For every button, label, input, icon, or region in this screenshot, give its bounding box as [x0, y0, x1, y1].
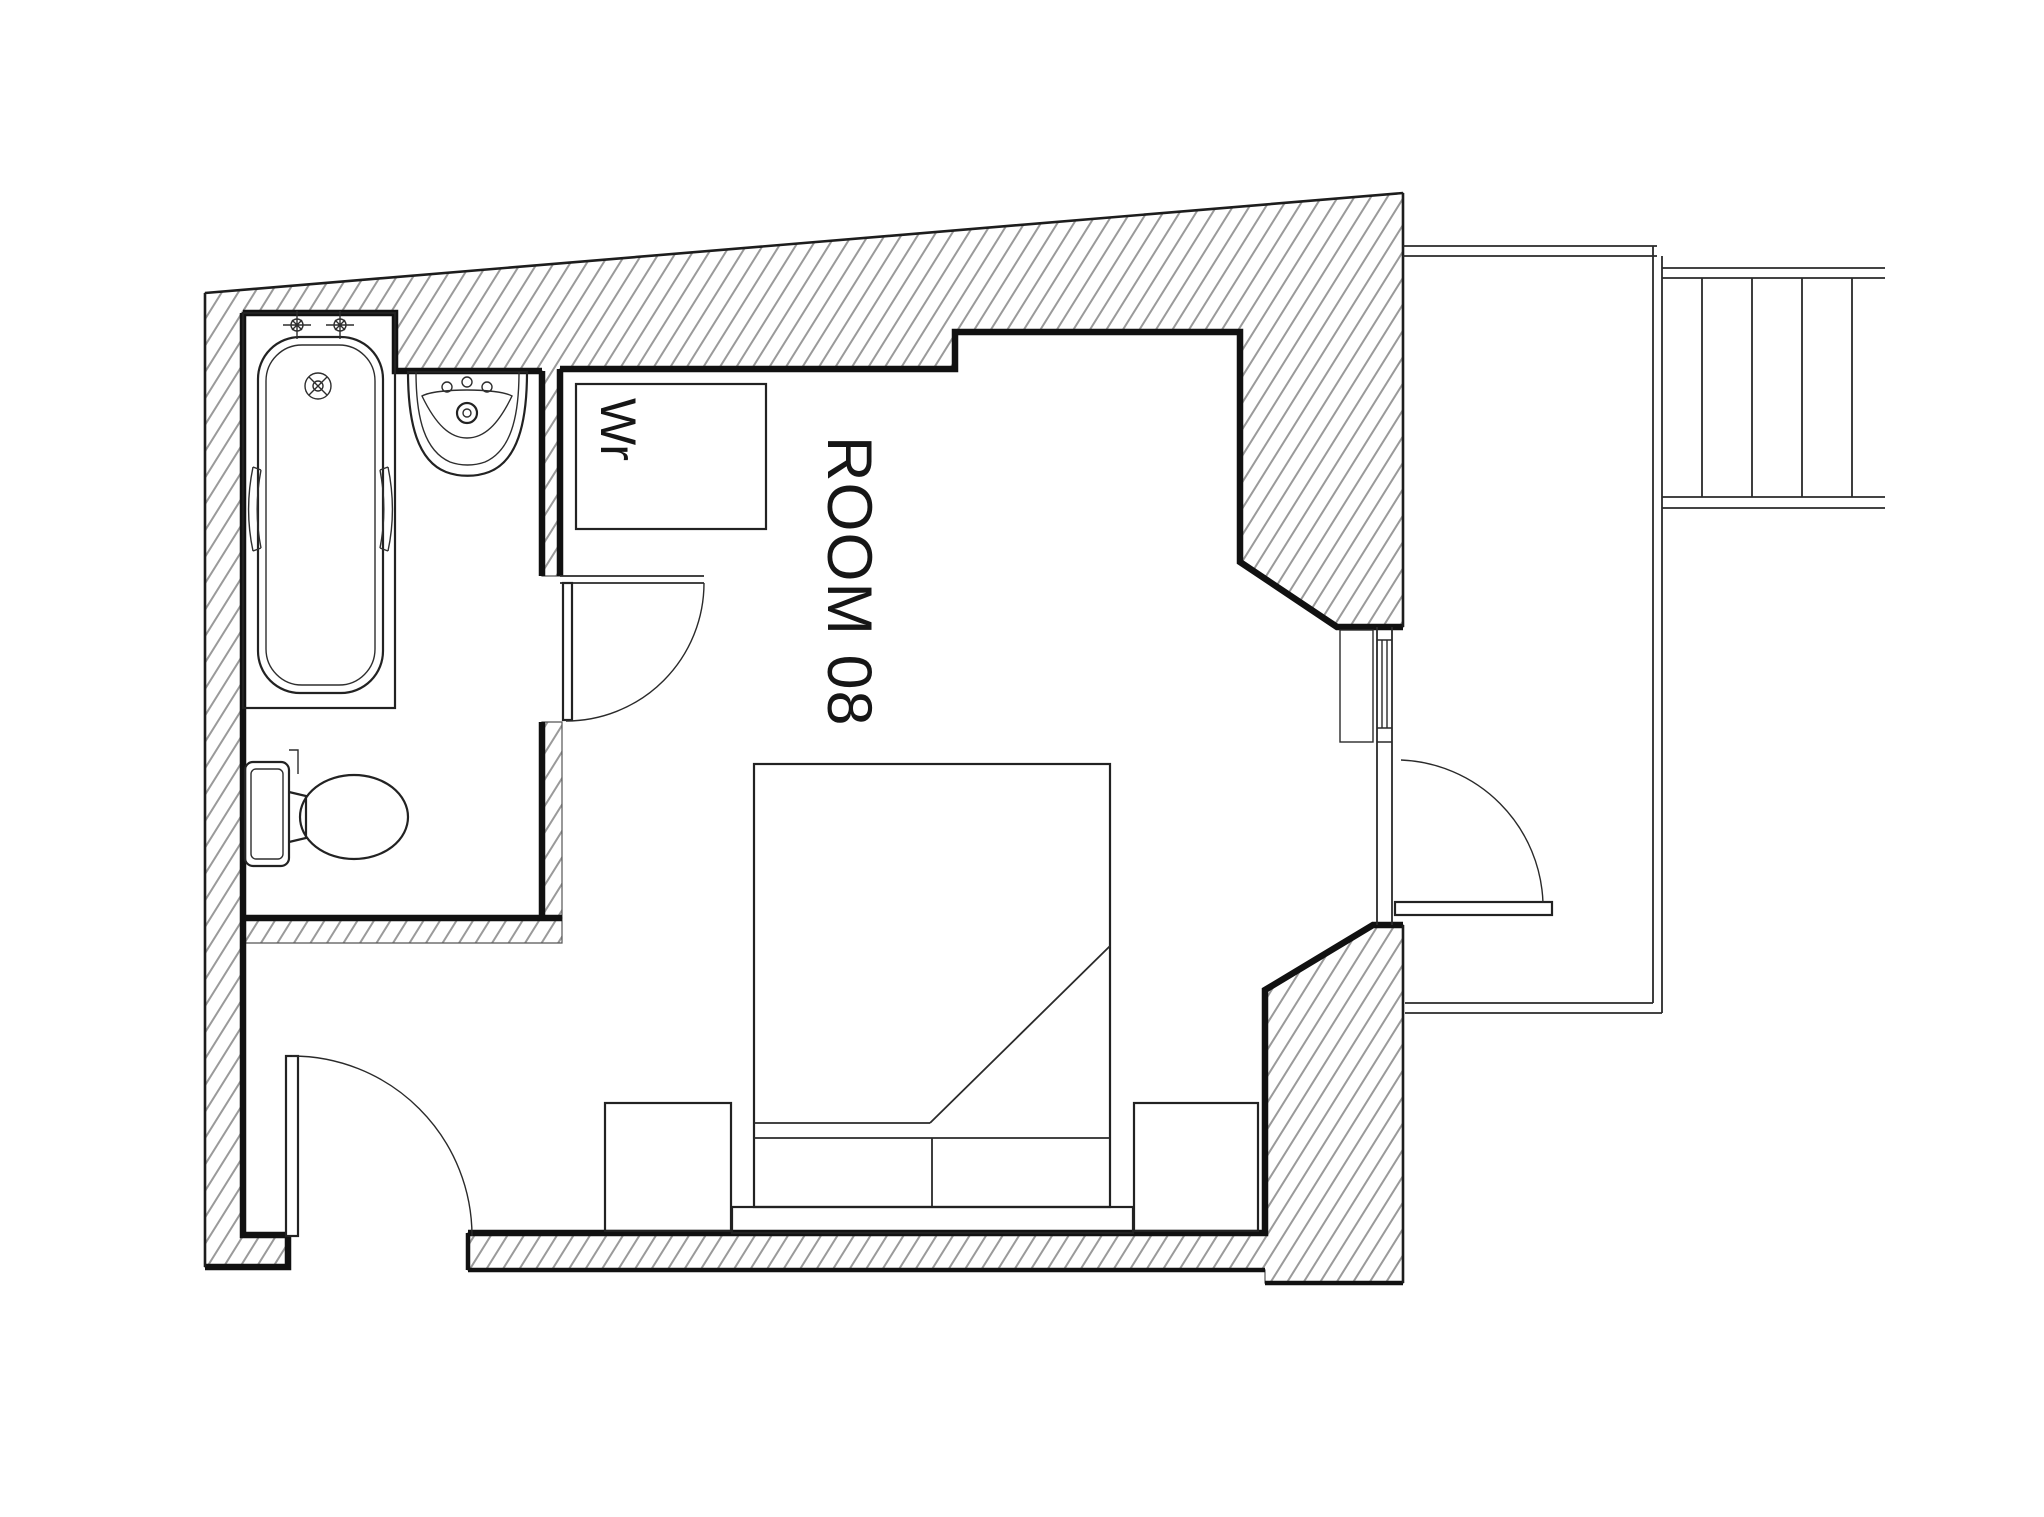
toilet-flush-handle — [289, 750, 298, 774]
bathroom-door-swing-arc — [566, 583, 704, 721]
wall-niche — [1340, 630, 1373, 742]
sink-inner — [416, 372, 519, 465]
wardrobe: Wr — [576, 384, 766, 529]
sink-basin — [422, 390, 512, 438]
bathtub-inner — [266, 345, 375, 685]
main-door — [1395, 760, 1552, 915]
landing-bottom-edge — [1405, 1003, 1662, 1013]
main-door-swing-arc — [1401, 760, 1543, 903]
drain-icon — [305, 373, 331, 399]
sink-faucet — [457, 403, 477, 423]
wall-bathroom-south — [243, 918, 562, 943]
bathroom-door — [560, 576, 704, 721]
room-label: ROOM 08 — [814, 436, 884, 727]
right-wall-opening — [1340, 627, 1552, 925]
wall-top-left — [205, 193, 1403, 1267]
floor-plan-page: Wr ROOM 08 — [0, 0, 2044, 1517]
toilet-cistern-inner — [251, 769, 283, 859]
wall-faces-south — [468, 925, 1403, 1233]
stair-top-rail — [1662, 268, 1885, 278]
sink — [408, 372, 527, 476]
nightstand-left — [605, 1103, 731, 1231]
window-sills — [1377, 640, 1392, 742]
nightstand-right — [1134, 1103, 1258, 1231]
window-glass — [1382, 640, 1387, 728]
bathroom-door-header — [560, 576, 704, 583]
window — [1377, 627, 1392, 925]
bed — [732, 764, 1133, 1233]
main-door-leaf — [1395, 902, 1552, 915]
bathtub — [243, 311, 395, 708]
bed-headboard — [732, 1207, 1133, 1233]
entry-door — [286, 1056, 472, 1236]
window-frame — [1377, 627, 1392, 925]
stair-bottom-rail — [1662, 497, 1885, 508]
walls — [205, 193, 1403, 1283]
landing-top-rail — [1403, 246, 1657, 256]
entry-door-leaf — [286, 1056, 298, 1236]
stair-left-wall — [1653, 246, 1662, 1013]
bathroom-door-leaf — [563, 583, 572, 720]
sink-faucet-center — [463, 409, 471, 417]
bathroom — [243, 311, 704, 866]
wardrobe-label: Wr — [590, 398, 646, 461]
entry-door-swing-arc — [292, 1056, 472, 1236]
stair-treads — [1702, 278, 1852, 497]
toilet-bowl — [300, 775, 408, 859]
bed-duvet-fold — [930, 946, 1110, 1123]
sink-hole — [462, 377, 472, 387]
toilet — [245, 750, 408, 866]
grab-bar-left — [249, 467, 262, 551]
floor-plan-canvas: Wr ROOM 08 — [0, 0, 2044, 1517]
stairs-landing — [1403, 246, 1885, 1013]
wall-faces-bath-south — [243, 722, 562, 918]
bedroom: Wr ROOM 08 — [286, 384, 1258, 1236]
grab-bar-right — [380, 467, 393, 551]
